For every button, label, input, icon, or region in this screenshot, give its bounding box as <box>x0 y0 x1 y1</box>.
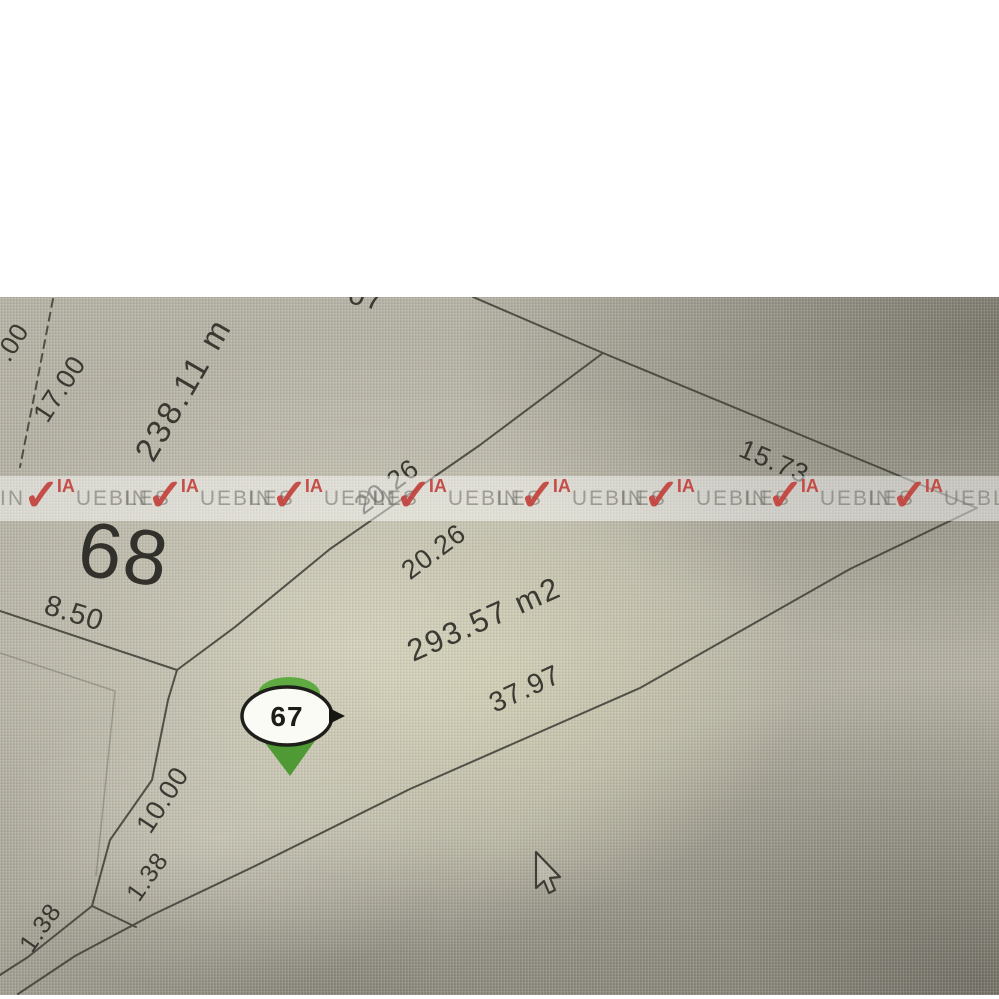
lot-67-map-pin[interactable] <box>0 297 999 995</box>
screenshot-root: { "map": { "description_title": "Plat ma… <box>0 0 999 999</box>
pin-lot-number[interactable]: 67 <box>270 701 303 733</box>
plat-map-photo: .00 17.00 238.11 m 07 20.26 20.26 15.73 … <box>0 297 999 995</box>
pin-pointer-icon <box>329 708 345 724</box>
